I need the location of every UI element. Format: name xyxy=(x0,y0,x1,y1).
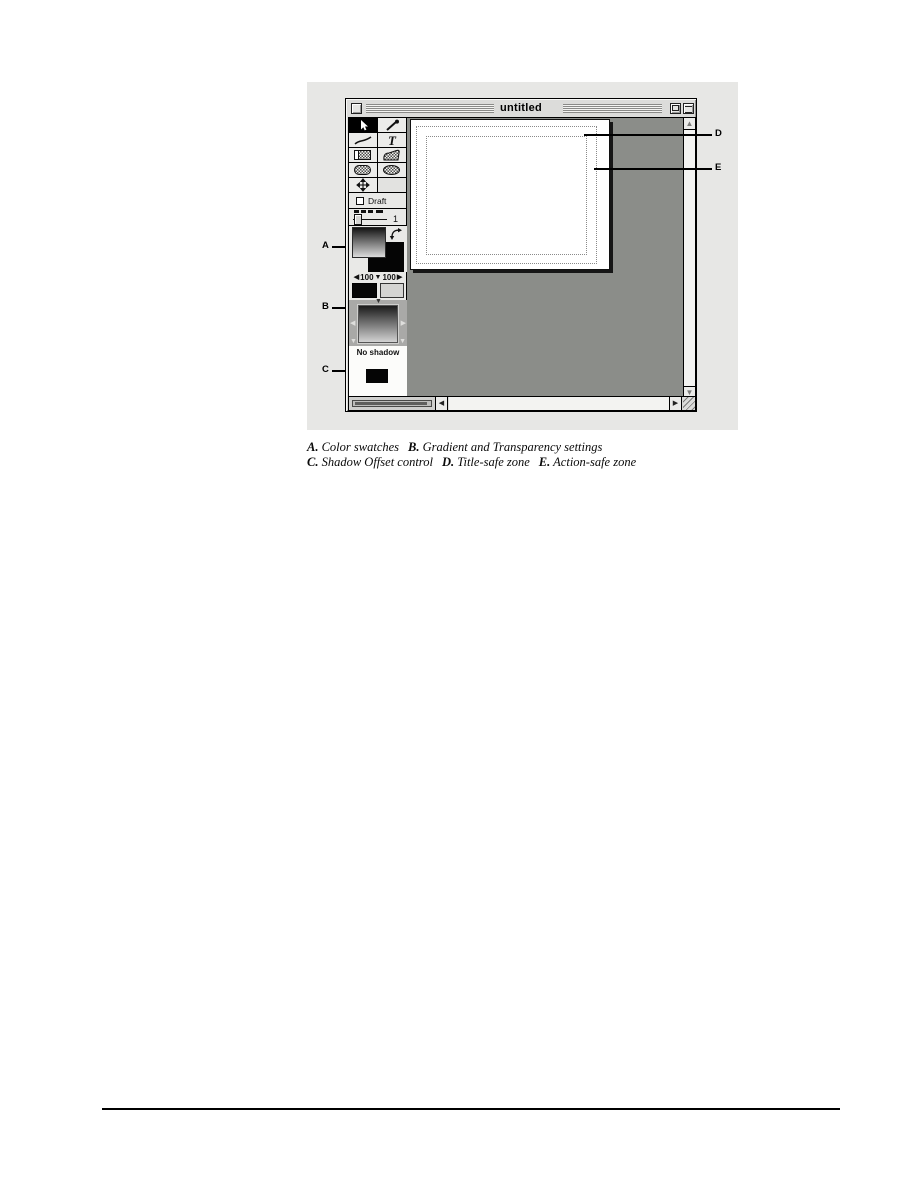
caption-item: D. Title-safe zone xyxy=(442,455,530,469)
transparency-settings[interactable]: ◀100▼100▶ xyxy=(349,272,407,282)
collapse-box-icon[interactable] xyxy=(683,103,694,114)
foreground-color-swatch[interactable] xyxy=(352,227,386,258)
polygon-icon xyxy=(380,148,404,162)
eyedropper-icon xyxy=(380,119,404,132)
transparency-start-value[interactable]: 100 xyxy=(359,273,374,282)
callout-line-a xyxy=(332,246,346,248)
callout-label-e: E xyxy=(715,162,721,173)
polygon-tool[interactable] xyxy=(378,148,406,162)
scroll-left-icon[interactable]: ◀ xyxy=(435,397,448,410)
callout-label-c: C xyxy=(322,364,329,375)
rounded-rectangle-tool[interactable] xyxy=(349,163,377,177)
window-title: untitled xyxy=(348,102,694,114)
window-content: T xyxy=(348,117,696,411)
gradient-direction-top-icon[interactable]: ▼ xyxy=(375,298,382,305)
title-safe-zone xyxy=(426,136,587,255)
line-weight-dash xyxy=(361,210,366,213)
move-tool[interactable] xyxy=(349,178,377,192)
gradient-direction-left-icon[interactable]: ◀ xyxy=(350,320,355,327)
rectangle-icon xyxy=(351,148,375,162)
caption-line-2: C. Shadow Offset controlD. Title-safe zo… xyxy=(307,455,727,470)
view-slider-bar[interactable] xyxy=(355,402,427,405)
draft-option[interactable]: Draft xyxy=(349,194,407,208)
callout-label-d: D xyxy=(715,128,722,139)
caption-item: A. Color swatches xyxy=(307,440,399,454)
zoom-box-icon[interactable] xyxy=(670,103,681,114)
bottom-bar: ◀ ▶ xyxy=(349,396,696,410)
empty-tool-cell xyxy=(378,178,406,192)
text-tool[interactable]: T xyxy=(378,133,406,147)
line-weight-control: 1 xyxy=(349,209,407,226)
callout-label-b: B xyxy=(322,301,329,312)
eyedropper-tool[interactable] xyxy=(378,118,406,132)
transparency-down-arrow-icon[interactable]: ▼ xyxy=(375,274,382,281)
callout-line-b xyxy=(332,307,346,309)
gradient-end-swatch[interactable] xyxy=(380,283,404,298)
callout-label-a: A xyxy=(322,240,329,251)
gradient-start-swatch[interactable] xyxy=(352,283,377,298)
shadow-offset-control[interactable]: No shadow xyxy=(349,346,407,398)
oval-tool[interactable] xyxy=(378,163,406,177)
caption-item: E. Action-safe zone xyxy=(539,455,636,469)
horizontal-scrollbar[interactable] xyxy=(449,397,669,410)
swap-colors-icon[interactable] xyxy=(389,227,402,240)
rounded-rectangle-icon xyxy=(351,163,375,177)
vertical-scrollbar[interactable]: ▲ ▼ xyxy=(683,118,695,398)
caption-line-1: A. Color swatchesB. Gradient and Transpa… xyxy=(307,440,727,455)
line-tool[interactable] xyxy=(349,133,377,147)
transparency-right-arrow-icon[interactable]: ▶ xyxy=(397,274,402,281)
gradient-preview[interactable] xyxy=(358,305,398,343)
color-swatches xyxy=(349,226,407,272)
callout-line-d xyxy=(584,134,712,136)
text-tool-icon: T xyxy=(388,134,396,147)
gradient-direction-bottom-left-icon[interactable]: ▼ xyxy=(350,338,357,345)
shadow-status-label: No shadow xyxy=(349,348,407,357)
selection-tool[interactable] xyxy=(349,118,377,132)
resize-grip[interactable] xyxy=(683,397,696,410)
scroll-up-icon[interactable]: ▲ xyxy=(684,118,695,130)
line-weight-slider-handle[interactable] xyxy=(354,214,362,225)
view-slider-track[interactable] xyxy=(352,400,432,407)
transparency-end-value[interactable]: 100 xyxy=(381,273,396,282)
gradient-direction-panel: ▼ ◀ ▶ ▼ ▼ xyxy=(349,300,407,346)
callout-line-e xyxy=(594,168,712,170)
figure-caption: A. Color swatchesB. Gradient and Transpa… xyxy=(307,440,727,469)
screenshot-figure: untitled xyxy=(307,82,738,430)
selection-arrow-icon xyxy=(351,119,375,132)
caption-item: B. Gradient and Transparency settings xyxy=(408,440,602,454)
line-icon xyxy=(351,134,375,147)
shadow-offset-swatch[interactable] xyxy=(366,369,388,383)
line-weight-dash xyxy=(354,210,359,213)
gradient-direction-bottom-right-icon[interactable]: ▼ xyxy=(399,338,406,345)
tool-grid: T xyxy=(349,118,407,193)
line-weight-value: 1 xyxy=(393,214,398,224)
footer-rule xyxy=(102,1108,840,1110)
move-icon xyxy=(351,178,375,192)
callout-line-c xyxy=(332,370,346,372)
draft-label: Draft xyxy=(368,196,386,206)
scroll-right-icon[interactable]: ▶ xyxy=(669,397,682,410)
tool-palette: T xyxy=(349,118,407,398)
drawing-canvas[interactable] xyxy=(410,119,610,270)
rectangle-tool[interactable] xyxy=(349,148,377,162)
window-titlebar[interactable]: untitled xyxy=(348,101,694,116)
view-slider-zone xyxy=(349,397,435,410)
line-weight-dash xyxy=(376,210,383,213)
manual-page: untitled xyxy=(0,0,918,1188)
oval-icon xyxy=(380,163,404,177)
gradient-direction-right-icon[interactable]: ▶ xyxy=(401,320,406,327)
line-weight-dash xyxy=(368,210,373,213)
draft-checkbox[interactable] xyxy=(356,197,364,205)
caption-item: C. Shadow Offset control xyxy=(307,455,433,469)
title-window: untitled xyxy=(345,98,697,412)
